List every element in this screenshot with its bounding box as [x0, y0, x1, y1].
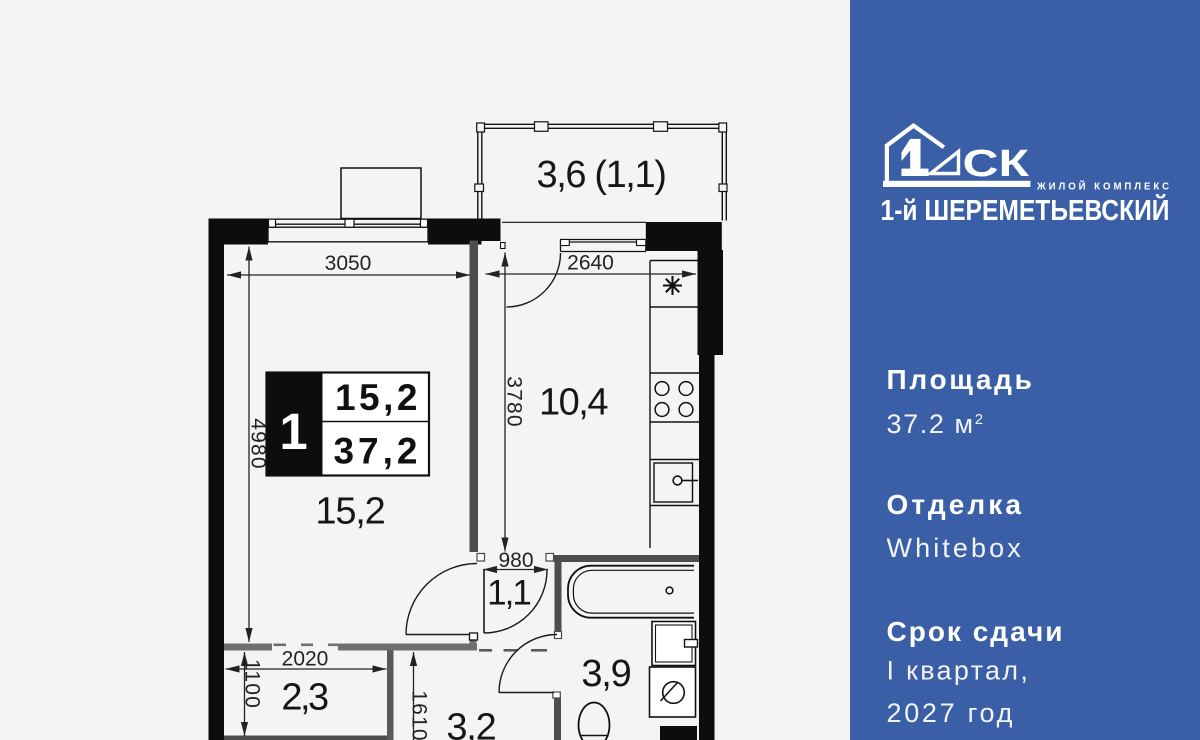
svg-text:15,2: 15,2: [335, 377, 421, 418]
svg-text:1: 1: [279, 403, 307, 460]
svg-text:3050: 3050: [325, 252, 372, 275]
svg-text:980: 980: [498, 549, 533, 572]
svg-text:ЖИЛОЙ КОМПЛЕКС: ЖИЛОЙ КОМПЛЕКС: [1036, 180, 1172, 193]
svg-text:1100: 1100: [241, 659, 264, 709]
svg-text:Отделка: Отделка: [887, 489, 1025, 520]
svg-text:1,1: 1,1: [487, 574, 530, 613]
svg-text:1610: 1610: [408, 690, 431, 740]
svg-text:2020: 2020: [282, 648, 329, 671]
svg-text:37.2 м2: 37.2 м2: [887, 409, 985, 439]
svg-text:Whitebox: Whitebox: [887, 533, 1024, 563]
svg-text:37,2: 37,2: [333, 431, 421, 472]
svg-text:15,2: 15,2: [315, 491, 384, 533]
svg-text:10,4: 10,4: [539, 382, 608, 424]
svg-text:3,6 (1,1): 3,6 (1,1): [537, 154, 666, 196]
svg-text:2027 год: 2027 год: [887, 698, 1016, 728]
svg-text:Срок сдачи: Срок сдачи: [887, 616, 1065, 647]
svg-text:2,3: 2,3: [281, 677, 328, 719]
svg-text:СК: СК: [963, 143, 1031, 185]
svg-text:3,9: 3,9: [581, 653, 630, 695]
svg-text:3,2: 3,2: [446, 707, 495, 740]
svg-text:3780: 3780: [503, 376, 526, 428]
svg-text:2640: 2640: [567, 252, 614, 275]
svg-text:I квартал,: I квартал,: [887, 656, 1031, 686]
svg-text:Площадь: Площадь: [887, 364, 1035, 395]
svg-text:1-й ШЕРЕМЕТЬЕВСКИЙ: 1-й ШЕРЕМЕТЬЕВСКИЙ: [881, 194, 1170, 227]
